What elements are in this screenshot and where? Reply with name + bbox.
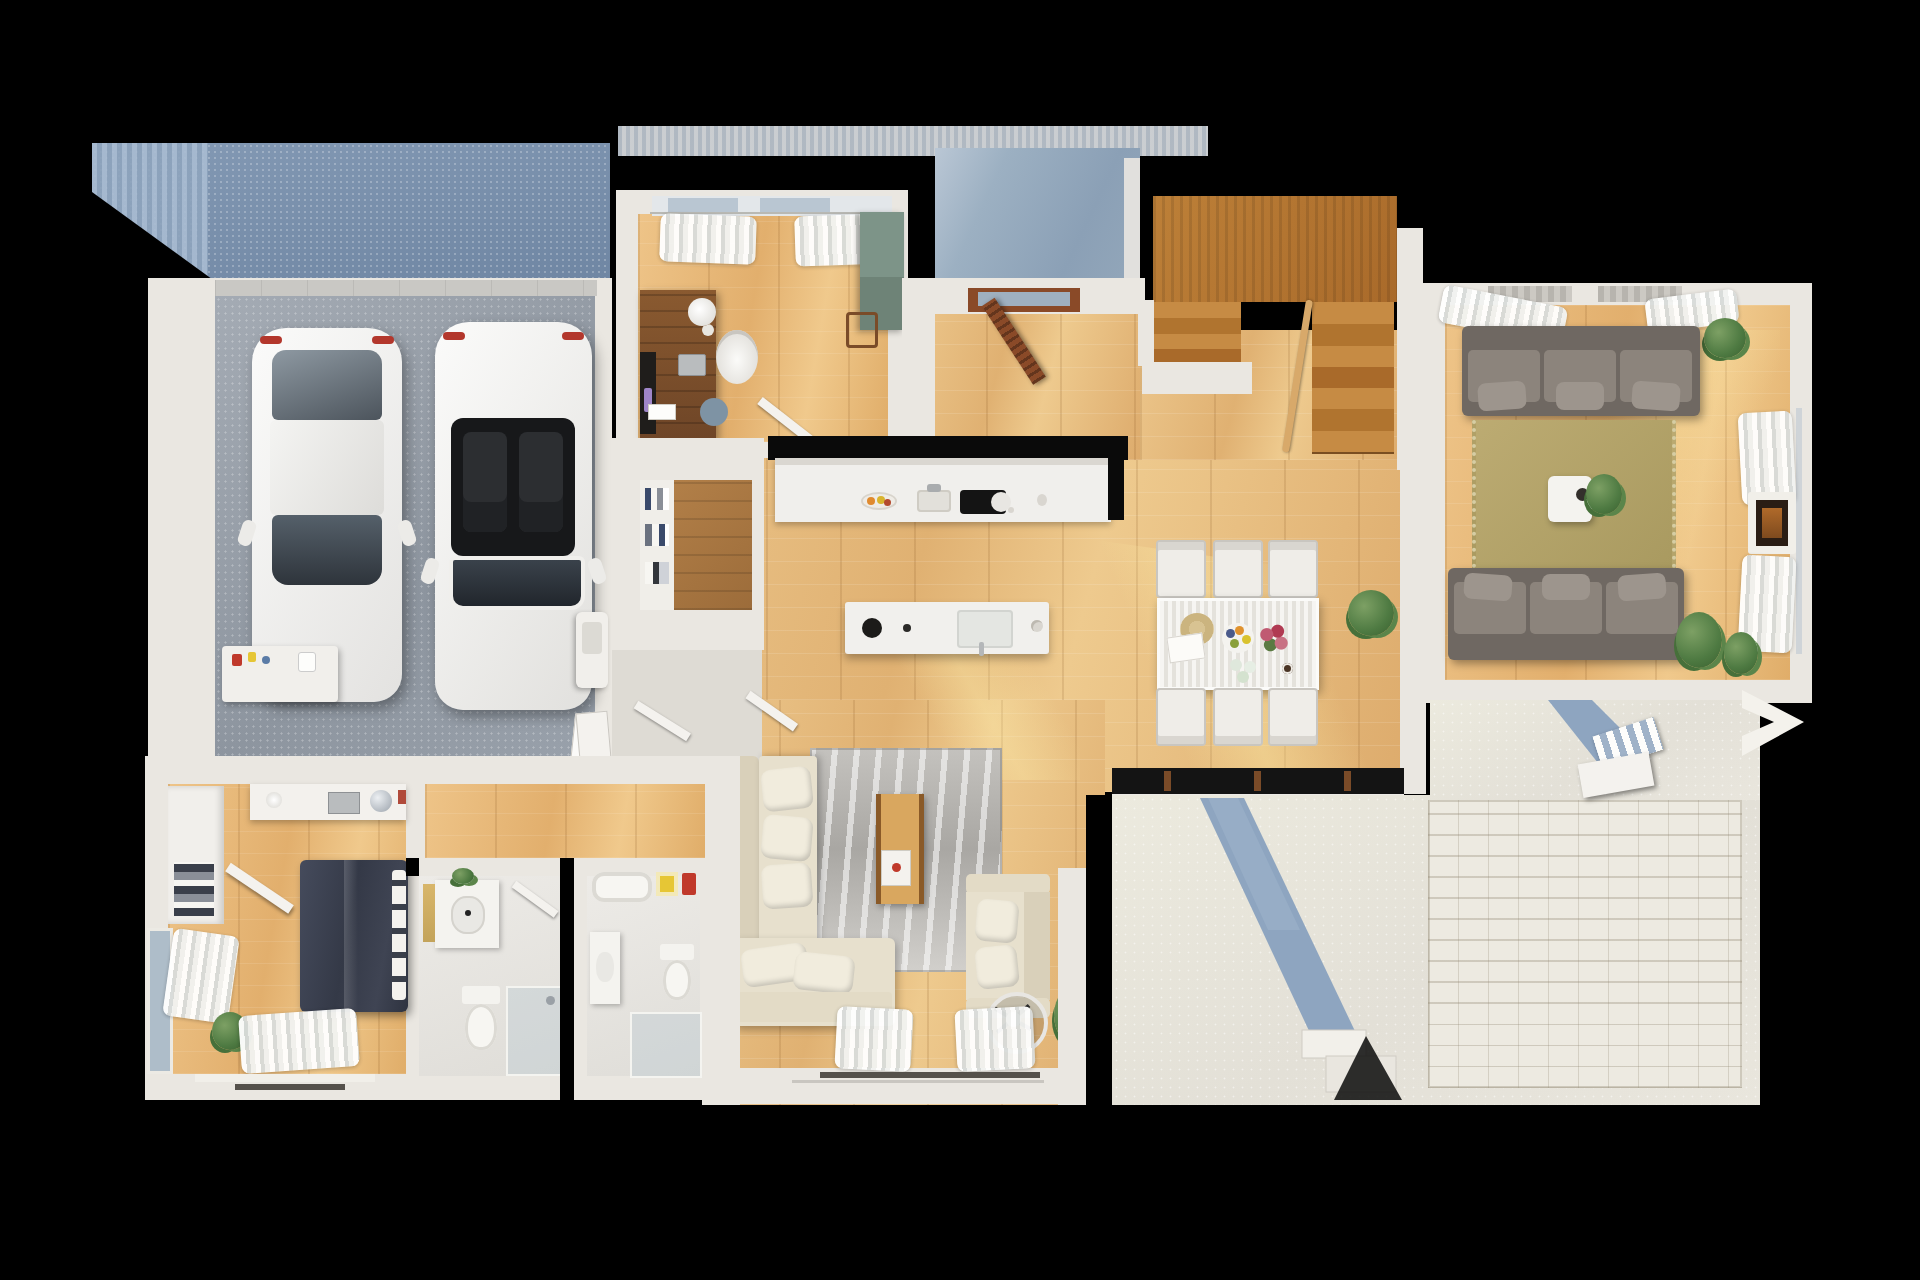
foyer-left-wall bbox=[902, 278, 935, 458]
living-plant-bottom bbox=[1676, 612, 1722, 668]
grey-sofa-top bbox=[1462, 326, 1700, 416]
bench-item-blue bbox=[262, 656, 270, 664]
loveseat-pillow bbox=[974, 944, 1020, 990]
car-seat bbox=[463, 432, 507, 532]
bath-b-vanity bbox=[590, 932, 620, 1004]
sectional-pillow bbox=[760, 766, 814, 813]
fruit-plate bbox=[1222, 623, 1254, 653]
stair-living-wall bbox=[1397, 228, 1423, 470]
media-console bbox=[876, 794, 924, 904]
entry-porch bbox=[935, 148, 1140, 280]
island-faucet bbox=[979, 642, 984, 656]
kitchen-sink bbox=[917, 490, 951, 512]
tail-light bbox=[562, 332, 584, 340]
sofa-pillow bbox=[1463, 572, 1513, 601]
car-roof bbox=[270, 420, 384, 515]
pan bbox=[991, 492, 1011, 512]
desk-item-red bbox=[398, 790, 406, 804]
island-sink bbox=[957, 610, 1013, 648]
sliding-door-band bbox=[1112, 768, 1404, 794]
tail-light bbox=[443, 332, 465, 340]
porch-right-edge bbox=[1124, 158, 1140, 280]
toilet-b bbox=[660, 944, 696, 1002]
shower-a bbox=[506, 986, 564, 1076]
stair-tread bbox=[1312, 388, 1394, 411]
stair-tread bbox=[1312, 367, 1394, 390]
bedroom-desk bbox=[250, 784, 406, 820]
island-pot bbox=[862, 618, 882, 638]
island-mug bbox=[1031, 620, 1043, 632]
stair-tread bbox=[1312, 324, 1394, 348]
kitchen-shadow-band bbox=[768, 436, 1128, 460]
fruit bbox=[884, 499, 891, 506]
bath-a-vanity bbox=[435, 880, 499, 948]
duvet-fold bbox=[344, 860, 358, 1012]
stair-side-wall bbox=[1142, 362, 1252, 394]
kitchen-island bbox=[845, 602, 1049, 654]
fire-logs bbox=[1762, 508, 1782, 538]
vanity-sink bbox=[596, 952, 614, 982]
bedroom-window-dark bbox=[235, 1084, 345, 1090]
windshield-frame bbox=[449, 556, 585, 610]
bath-a-mirror bbox=[423, 884, 435, 942]
family-window-dark bbox=[820, 1072, 1040, 1078]
papers bbox=[1166, 633, 1205, 664]
wardrobe bbox=[168, 786, 224, 924]
dining-right-wall bbox=[1400, 452, 1426, 794]
disco-ball bbox=[370, 790, 392, 812]
door-mullion bbox=[1254, 771, 1261, 791]
toilet bbox=[462, 986, 502, 1052]
drinking-glasses bbox=[1230, 659, 1242, 671]
sink-basin bbox=[582, 622, 602, 654]
dining-table bbox=[1157, 598, 1319, 690]
sectional-pillow bbox=[760, 814, 814, 862]
bedroom-curtain-left bbox=[162, 928, 240, 1024]
yellow-mirror bbox=[656, 872, 678, 896]
chaise-cushion bbox=[792, 951, 856, 995]
shelf-items bbox=[645, 524, 669, 546]
utility-sink bbox=[576, 612, 608, 688]
toilet-tank bbox=[660, 944, 694, 960]
stair-tread bbox=[1312, 346, 1394, 369]
dining-plant bbox=[1348, 590, 1394, 636]
faucet-dot bbox=[465, 910, 471, 916]
dining-chair bbox=[1213, 688, 1263, 746]
stair-tread bbox=[1312, 431, 1394, 454]
stair-left-flight bbox=[1153, 302, 1241, 364]
loveseat-arm-top bbox=[966, 874, 1050, 894]
stair-landing bbox=[1153, 196, 1397, 302]
shower-b bbox=[630, 1012, 702, 1078]
windshield bbox=[272, 515, 382, 585]
dining-chair bbox=[1268, 688, 1318, 746]
dining-chair bbox=[1268, 540, 1318, 598]
door-mullion bbox=[1344, 771, 1351, 791]
bath-a-plant bbox=[452, 868, 474, 884]
blue-pouf bbox=[700, 398, 728, 426]
dining-chair bbox=[1156, 688, 1206, 746]
toilet-bowl bbox=[663, 960, 691, 1000]
bathtub bbox=[592, 872, 652, 902]
bedroom-curtain-bottom bbox=[238, 1008, 360, 1074]
wall-seam bbox=[560, 858, 574, 1100]
counter-jar bbox=[1037, 494, 1047, 506]
toilet-bowl bbox=[465, 1004, 497, 1050]
desk-tray bbox=[648, 404, 676, 420]
fruit bbox=[1242, 635, 1251, 644]
sofa-pillow bbox=[1617, 572, 1667, 601]
flower-bouquet bbox=[1256, 621, 1292, 655]
fruit bbox=[1226, 629, 1235, 638]
family-curtain-left bbox=[834, 1006, 913, 1072]
car-seat bbox=[519, 432, 563, 532]
wardrobe-shelf-items bbox=[174, 862, 214, 916]
kitchen-counter-end-shadow bbox=[1108, 450, 1124, 520]
stair-base-wall bbox=[1138, 300, 1154, 366]
laptop bbox=[678, 354, 706, 376]
kitchen-faucet bbox=[927, 484, 941, 492]
stair-tread bbox=[1312, 302, 1394, 326]
family-curtain-rod bbox=[792, 1080, 1044, 1083]
backsplash bbox=[775, 458, 1111, 465]
sofa-pillow bbox=[1556, 382, 1604, 410]
garage-door bbox=[215, 280, 597, 296]
shelf-items bbox=[645, 562, 669, 584]
office-chair bbox=[716, 330, 758, 384]
patio-brick-pavers bbox=[1428, 800, 1742, 1088]
stair-tread bbox=[1312, 409, 1394, 433]
shower-head bbox=[546, 996, 555, 1005]
desk-lamp bbox=[688, 298, 716, 326]
sofa-pillow bbox=[1477, 380, 1527, 411]
living-window-line bbox=[1796, 408, 1802, 654]
grey-sofa-bottom bbox=[1448, 568, 1684, 660]
living-plant-bottom-2 bbox=[1724, 632, 1758, 674]
coffee-table bbox=[1548, 476, 1592, 522]
fruit bbox=[1230, 639, 1239, 648]
sectional-pillow bbox=[761, 862, 814, 909]
fruit-bowl bbox=[861, 492, 897, 510]
console-device bbox=[881, 850, 911, 886]
hall-corridor-floor bbox=[425, 784, 705, 858]
door-mullion bbox=[1164, 771, 1171, 791]
tail-light bbox=[372, 336, 394, 344]
open-cabin bbox=[451, 418, 575, 556]
device-red-dot bbox=[892, 863, 901, 872]
loveseat-back bbox=[1024, 892, 1050, 1000]
patio-gap bbox=[1086, 795, 1112, 1105]
bedroom-sill bbox=[195, 1074, 375, 1082]
sofa-pillow bbox=[1631, 380, 1681, 411]
family-curtain-right bbox=[954, 1006, 1035, 1072]
bed bbox=[300, 860, 408, 1012]
living-plant-top bbox=[1704, 318, 1746, 358]
rear-window bbox=[272, 350, 382, 420]
workbench bbox=[222, 646, 338, 702]
desk-lamp-small bbox=[266, 792, 282, 808]
loveseat-pillow bbox=[974, 898, 1020, 944]
fruit bbox=[867, 497, 875, 505]
wall-seam bbox=[406, 858, 419, 876]
toilet-tank bbox=[462, 986, 500, 1004]
fireplace bbox=[1748, 492, 1796, 554]
shelf-items bbox=[645, 488, 669, 510]
car-convertible bbox=[435, 322, 592, 710]
sofa-pillow bbox=[1542, 574, 1590, 600]
dining-chair bbox=[1156, 540, 1206, 598]
red-towel bbox=[682, 873, 696, 895]
office-curtain-left bbox=[659, 213, 757, 264]
coffee-cup bbox=[1282, 663, 1293, 674]
wood-stool bbox=[846, 312, 878, 348]
dining-chair bbox=[1213, 540, 1263, 598]
laptop-small bbox=[328, 792, 360, 814]
coffee-table-plant bbox=[1586, 474, 1622, 514]
tail-light bbox=[260, 336, 282, 344]
stair-right-flight bbox=[1312, 302, 1394, 452]
bench-item-yellow bbox=[248, 652, 256, 662]
bench-item-red bbox=[232, 654, 242, 666]
bench-jug bbox=[298, 652, 316, 672]
bed-pillows bbox=[392, 870, 406, 1000]
island-dot bbox=[903, 624, 911, 632]
floor-plan-canvas bbox=[0, 0, 1920, 1280]
kitchen-counter bbox=[775, 458, 1111, 522]
fruit bbox=[1235, 626, 1244, 635]
pantry-shelves bbox=[640, 480, 674, 610]
